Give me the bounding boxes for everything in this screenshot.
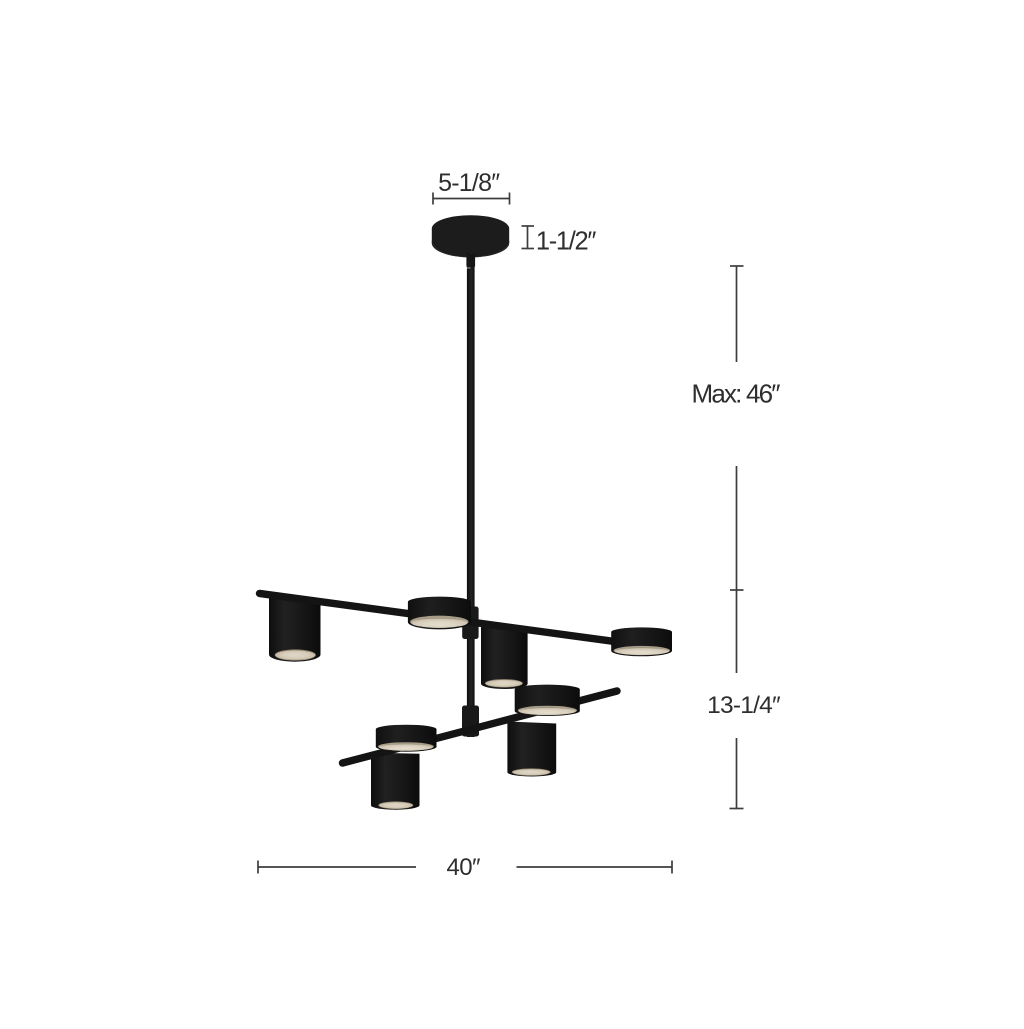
svg-text:1-1/2″: 1-1/2″ [536,227,597,255]
svg-text:Max: 46″: Max: 46″ [692,379,781,409]
svg-text:5-1/8″: 5-1/8″ [438,169,500,197]
svg-text:40″: 40″ [447,854,482,881]
svg-text:13-1/4″: 13-1/4″ [707,692,781,719]
